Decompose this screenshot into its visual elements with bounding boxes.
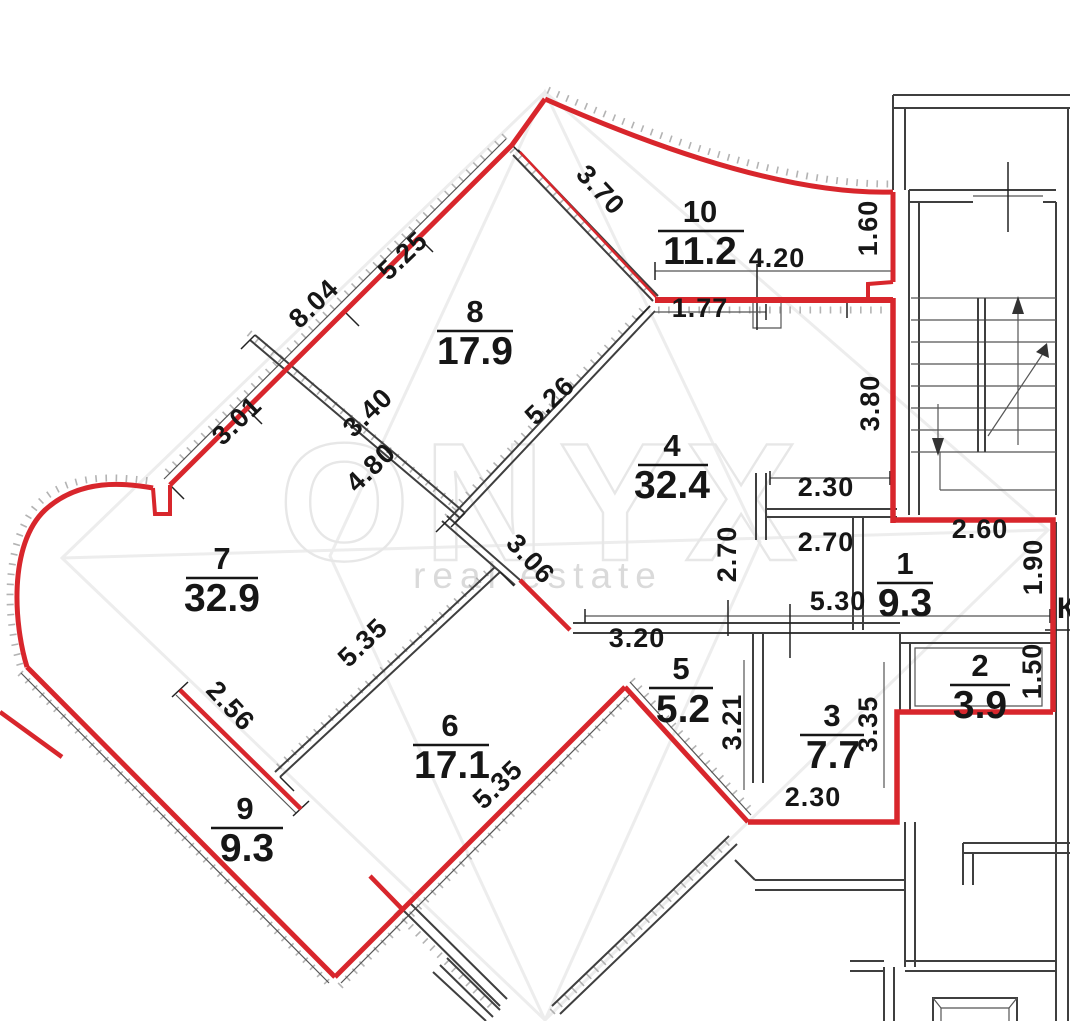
dim-1-90: 1.90: [1018, 539, 1048, 596]
room-7-number: 7: [213, 541, 230, 576]
stair-treads: [911, 296, 1056, 490]
room-3-area: 7.7: [806, 734, 860, 777]
dim-2-70-h: 2.70: [798, 527, 855, 557]
room-8-area: 17.9: [437, 330, 513, 373]
room-label-9: 9 9.3: [211, 791, 283, 870]
elevator: [933, 998, 1017, 1021]
dim-3-20: 3.20: [609, 623, 666, 653]
room-4-area: 32.4: [634, 464, 710, 507]
dim-3-70: 3.70: [570, 159, 631, 221]
room-10-number: 10: [683, 194, 717, 229]
room-4-number: 4: [663, 428, 681, 463]
room-1-number: 1: [896, 546, 913, 581]
room-6-area: 17.1: [414, 744, 490, 787]
room-label-5: 5 5.2: [649, 651, 713, 731]
room-9-number: 9: [236, 791, 253, 826]
room-2-number: 2: [971, 648, 988, 683]
room-8-number: 8: [466, 294, 483, 329]
room-1-area: 9.3: [878, 582, 932, 625]
shaft-label: К: [1057, 592, 1070, 625]
dim-3-21: 3.21: [717, 694, 747, 751]
dim-3-80: 3.80: [855, 375, 885, 432]
dim-1-50: 1.50: [1017, 643, 1047, 700]
room-6-number: 6: [441, 708, 458, 743]
room-5-number: 5: [672, 651, 689, 686]
room-label-1: 1 9.3: [877, 546, 933, 625]
dim-1-60: 1.60: [853, 200, 883, 257]
floor-plan-page: ONYX real estate: [0, 0, 1070, 1021]
dim-5-30: 5.30: [810, 586, 867, 616]
room-9-area: 9.3: [220, 827, 274, 870]
dim-1-77: 1.77: [672, 293, 729, 323]
room-label-6: 6 17.1: [413, 708, 490, 787]
dim-4-20: 4.20: [749, 243, 806, 273]
floor-plan-svg: ONYX real estate: [0, 0, 1070, 1021]
dim-2-30-hall: 2.30: [798, 472, 855, 502]
dim-8-04: 8.04: [283, 273, 345, 334]
dim-5-35-left: 5.35: [332, 612, 394, 673]
room-label-10: 10 11.2: [658, 194, 744, 273]
room-10-area: 11.2: [663, 230, 737, 273]
dim-2-70-v: 2.70: [712, 526, 742, 583]
dim-2-30-bottom: 2.30: [785, 782, 842, 812]
room-3-number: 3: [823, 698, 840, 733]
room-label-8: 8 17.9: [437, 294, 513, 373]
room-5-area: 5.2: [656, 688, 710, 731]
room-2-area: 3.9: [953, 684, 1007, 727]
room-7-area: 32.9: [184, 577, 260, 620]
dim-2-60: 2.60: [952, 514, 1009, 544]
room-label-2: 2 3.9: [950, 648, 1010, 727]
